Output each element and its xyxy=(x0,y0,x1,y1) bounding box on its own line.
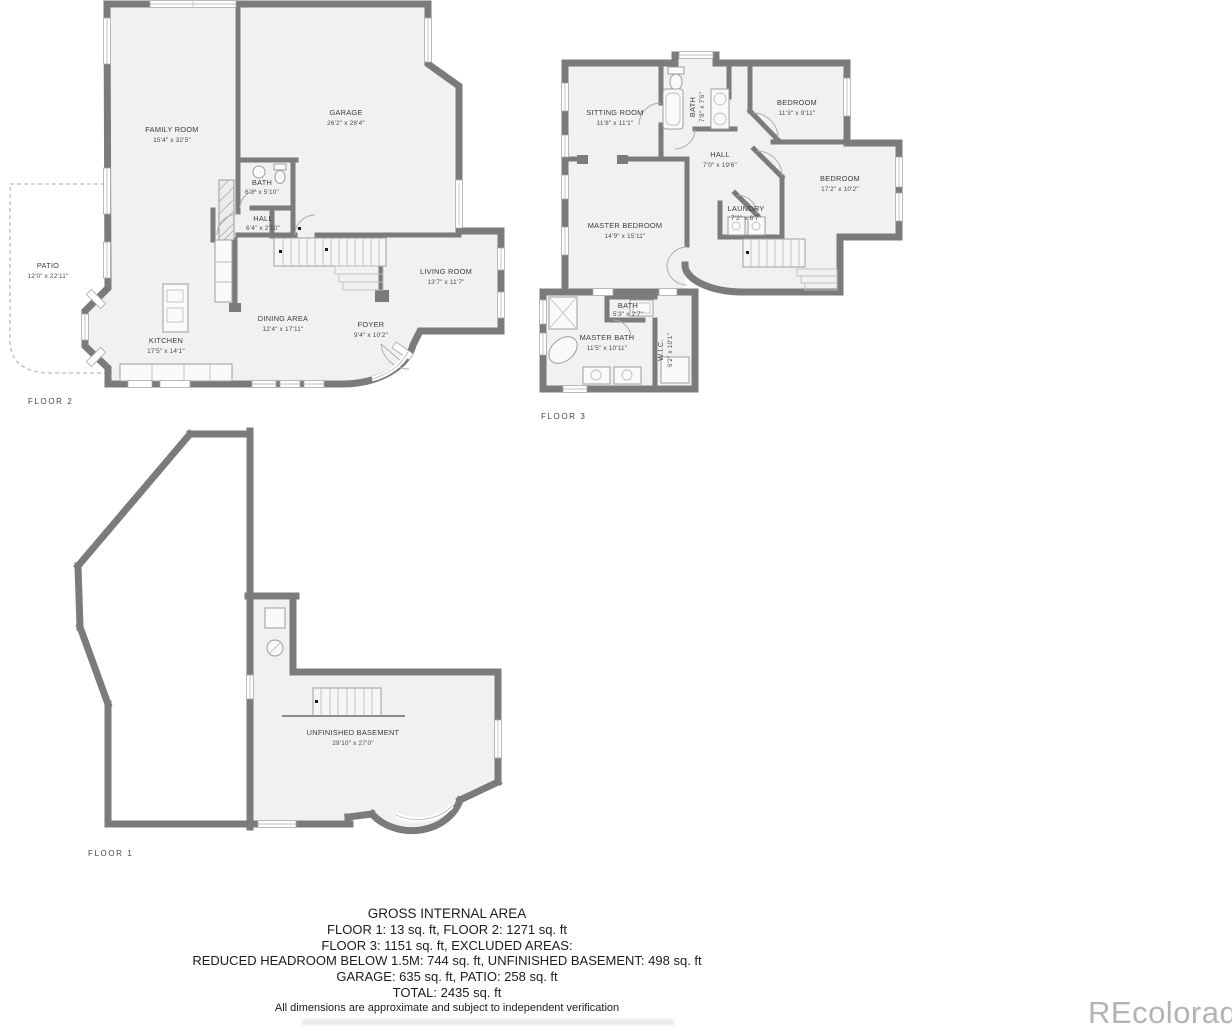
summary-line-4: GARAGE: 635 sq. ft, PATIO: 258 sq. ft xyxy=(0,969,894,985)
room-label-bedroom-large: BEDROOM xyxy=(820,174,860,183)
summary-line-2: FLOOR 3: 1151 sq. ft, EXCLUDED AREAS: xyxy=(0,938,894,954)
room-dims-wic: 6'2" x 10'1" xyxy=(667,333,674,367)
kitchen-island xyxy=(163,284,188,332)
wall-post xyxy=(617,155,628,164)
room-label-foyer: FOYER xyxy=(358,320,385,329)
area-summary: GROSS INTERNAL AREA FLOOR 1: 13 sq. ft, … xyxy=(0,906,894,1017)
room-label-wic: W.I.C. xyxy=(656,339,665,361)
room-dims-bath-small: 5'3" x 2'7" xyxy=(613,311,643,318)
cutoff-text-smudge xyxy=(302,1019,674,1025)
fireplace xyxy=(219,180,234,240)
room-dims-master-bath: 11'5" x 10'11" xyxy=(587,345,627,352)
room-dims-living-room: 13'7" x 11'7" xyxy=(427,279,464,286)
room-label-sitting-room: SITTING ROOM xyxy=(586,108,643,117)
floor1-plan: UNFINISHED BASEMENT 29'10" x 27'0" FLOOR… xyxy=(60,420,520,870)
room-dims-garage: 26'2" x 28'4" xyxy=(327,120,365,127)
room-dims-laundry: 7'2" x 6'7" xyxy=(731,215,761,222)
room-label-kitchen: KITCHEN xyxy=(149,336,183,345)
room-dims-foyer: 9'4" x 10'2" xyxy=(354,332,388,339)
floor-plan-page: { "colors": {"wall":"#7b7b7b","room_fill… xyxy=(0,0,1232,1025)
room-dims-master-bedroom: 14'9" x 15'11" xyxy=(605,233,646,240)
room-label-master-bedroom: MASTER BEDROOM xyxy=(588,221,663,230)
floor2-label: FLOOR 2 xyxy=(28,397,73,406)
recolorado-watermark: REcolorado xyxy=(1088,995,1232,1031)
room-dims-hall: 6'4" x 2'10" xyxy=(246,225,280,232)
room-label-patio: PATIO xyxy=(37,261,59,270)
summary-line-3: REDUCED HEADROOM BELOW 1.5M: 744 sq. ft,… xyxy=(0,953,894,969)
room-label-dining-area: DINING AREA xyxy=(258,314,308,323)
floor2-plan: FAMILY ROOM 15'4" x 32'5" GARAGE 26'2" x… xyxy=(0,0,515,412)
room-label-hall: HALL xyxy=(253,214,273,223)
room-label-bath-small: BATH xyxy=(618,301,638,310)
summary-disclaimer: All dimensions are approximate and subje… xyxy=(0,1001,894,1017)
wall-cap xyxy=(375,290,389,302)
room-dims-bedroom-small: 11'3" x 9'11" xyxy=(779,110,816,117)
floor1-label: FLOOR 1 xyxy=(88,849,133,858)
room-dims-sitting-room: 11'8" x 11'1" xyxy=(597,120,634,127)
room-label-bedroom-small: BEDROOM xyxy=(777,98,817,107)
room-dims-hall3: 7'0" x 19'6" xyxy=(703,162,737,169)
room-label-family-room: FAMILY ROOM xyxy=(145,125,198,134)
room-label-garage: GARAGE xyxy=(329,108,362,117)
room-dims-patio: 12'0" x 22'11" xyxy=(28,273,69,280)
summary-line-1: FLOOR 1: 13 sq. ft, FLOOR 2: 1271 sq. ft xyxy=(0,922,894,938)
room-dims-basement: 29'10" x 27'0" xyxy=(332,740,373,747)
room-label-master-bath: MASTER BATH xyxy=(580,333,635,342)
room-dims-dining-area: 12'4" x 17'11" xyxy=(263,326,304,333)
room-dims-kitchen: 17'5" x 14'1" xyxy=(147,348,185,355)
summary-title: GROSS INTERNAL AREA xyxy=(0,906,894,922)
room-dims-bath-top: 7'8" x 7'6" xyxy=(699,92,706,122)
room-label-basement: UNFINISHED BASEMENT xyxy=(307,728,400,737)
room-label-living-room: LIVING ROOM xyxy=(420,267,472,276)
floor3-plan: SITTING ROOM 11'8" x 11'1" BATH 7'8" x 7… xyxy=(535,45,915,430)
room-dims-bedroom-large: 17'2" x 10'2" xyxy=(821,186,859,193)
room-label-laundry: LAUNDRY xyxy=(728,204,765,213)
room-dims-bath: 6'3" x 5'10" xyxy=(245,189,279,196)
wall-post xyxy=(577,155,588,164)
floor3-label: FLOOR 3 xyxy=(541,412,586,421)
room-label-hall3: HALL xyxy=(710,150,730,159)
room-dims-family-room: 15'4" x 32'5" xyxy=(153,137,191,144)
room-label-bath-top: BATH xyxy=(688,97,697,117)
room-label-bath: BATH xyxy=(252,178,272,187)
wall-cap xyxy=(229,303,241,312)
summary-line-5: TOTAL: 2435 sq. ft xyxy=(0,985,894,1001)
